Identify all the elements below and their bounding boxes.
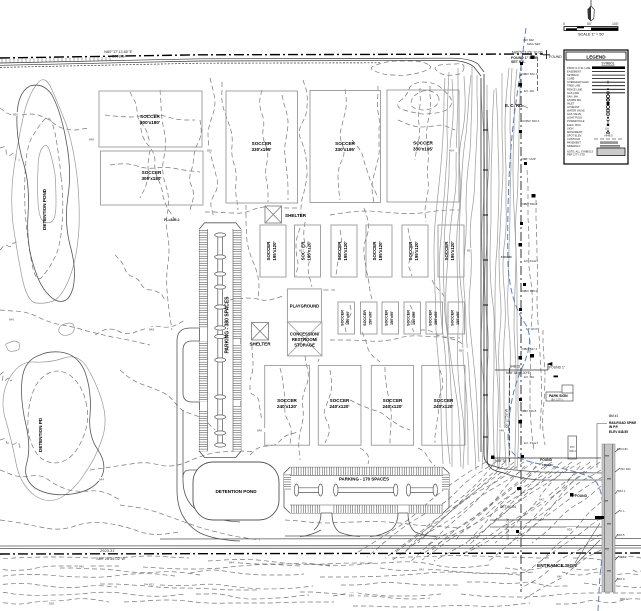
svg-text:RESTROOM/: RESTROOM/: [292, 337, 318, 342]
svg-text:SOCCER: SOCCER: [407, 310, 411, 326]
svg-text:FOUND: FOUND: [540, 458, 553, 462]
svg-text:FOUND: FOUND: [542, 463, 553, 467]
svg-text:SOCCER: SOCCER: [372, 241, 377, 261]
svg-text:LIGHT POLE: LIGHT POLE: [567, 116, 583, 120]
svg-text:195'x120': 195'x120': [378, 241, 383, 260]
svg-text:C.L.: C.L.: [620, 509, 626, 513]
svg-text:240'x120': 240'x120': [329, 404, 349, 409]
svg-text:STORAGE: STORAGE: [294, 343, 315, 348]
svg-text:195'x120': 195'x120': [272, 241, 277, 260]
svg-text:0: 0: [563, 22, 565, 26]
svg-text:850: 850: [459, 349, 464, 353]
svg-text:150'x90': 150'x90': [390, 311, 394, 325]
svg-text:TREE LINE: TREE LINE: [567, 84, 581, 88]
svg-text:854: 854: [449, 149, 454, 153]
svg-text:ELEC. BOX: ELEC. BOX: [567, 123, 581, 127]
svg-text:POWER POLE: POWER POLE: [567, 119, 585, 123]
svg-text:50': 50': [587, 22, 592, 26]
svg-text:150'x90': 150'x90': [412, 311, 416, 325]
svg-text:847.2: 847.2: [619, 555, 627, 559]
svg-text:PARKING - 380 SPACES: PARKING - 380 SPACES: [225, 296, 231, 354]
svg-text:SOCCER: SOCCER: [140, 114, 160, 119]
svg-text:SOCCER: SOCCER: [385, 310, 389, 326]
svg-text:838: 838: [567, 528, 572, 532]
svg-text:INV 839.2: INV 839.2: [524, 202, 538, 206]
svg-text:848: 848: [257, 429, 262, 433]
svg-text:SOCCER: SOCCER: [335, 141, 355, 146]
svg-text:SOCCER: SOCCER: [413, 141, 433, 146]
svg-text:EASEMENT: EASEMENT: [567, 70, 582, 74]
svg-text:SIGN: SIGN: [567, 126, 573, 130]
svg-text:CONCESSION/: CONCESSION/: [290, 332, 320, 337]
svg-text:240'x120': 240'x120': [433, 404, 453, 409]
svg-text:PARK SIGN: PARK SIGN: [549, 394, 568, 398]
svg-text:DETENTION POND: DETENTION POND: [42, 188, 47, 230]
svg-text:ELEV 848.55: ELEV 848.55: [609, 430, 628, 434]
svg-text:INV 840.6: INV 840.6: [526, 119, 540, 123]
svg-text:SOCCER: SOCCER: [252, 141, 272, 146]
svg-text:240'x120': 240'x120': [382, 404, 402, 409]
svg-text:SETBACK: SETBACK: [567, 73, 579, 77]
svg-text:846.0: 846.0: [617, 577, 625, 581]
svg-text:E. C. RD.: E. C. RD.: [505, 103, 524, 108]
svg-text:832: 832: [149, 583, 154, 587]
svg-text:195'x120': 195'x120': [343, 241, 348, 260]
svg-text:MONUMENT: MONUMENT: [567, 130, 583, 134]
svg-text:195'x120': 195'x120': [450, 241, 455, 260]
svg-text:FL=845.2: FL=845.2: [164, 218, 179, 222]
svg-text:150'x90': 150'x90': [456, 311, 460, 325]
svg-text:848.02: 848.02: [510, 365, 520, 369]
svg-text:846.2: 846.2: [570, 449, 577, 453]
svg-text:15" RCP: 15" RCP: [526, 327, 538, 331]
svg-text:852: 852: [299, 249, 304, 253]
svg-text:150'x90': 150'x90': [434, 311, 438, 325]
svg-text:SET P.K.: SET P.K.: [511, 60, 526, 64]
svg-text:195'x120': 195'x120': [414, 241, 419, 260]
svg-text:GAS LINE: GAS LINE: [567, 91, 579, 95]
svg-text:STORM MH: STORM MH: [567, 98, 581, 102]
svg-text:SOCCER: SOCCER: [429, 310, 433, 326]
svg-text:INLET: INLET: [567, 102, 575, 106]
svg-text:SOCCER: SOCCER: [444, 241, 449, 261]
svg-text:N89°52'13"E 70.00': N89°52'13"E 70.00': [512, 51, 543, 55]
svg-text:SOCCER: SOCCER: [363, 310, 367, 326]
svg-text:DETENTION PD: DETENTION PD: [38, 417, 43, 452]
svg-text:844: 844: [99, 478, 104, 482]
svg-text:SOCCER: SOCCER: [266, 241, 271, 261]
svg-text:330'x195': 330'x195': [251, 147, 271, 152]
svg-text:EX. INLET: EX. INLET: [524, 259, 538, 263]
svg-text:EX. INLET: EX. INLET: [524, 441, 538, 445]
svg-text:SOCCER: SOCCER: [337, 241, 342, 261]
svg-text:SOCCER: SOCCER: [434, 398, 454, 403]
svg-text:EX. MH: EX. MH: [524, 89, 534, 93]
svg-text:240'x120': 240'x120': [277, 404, 297, 409]
svg-text:2308.34': 2308.34': [112, 54, 127, 59]
svg-text:SET 50.00: SET 50.00: [500, 505, 516, 509]
svg-text:ENTRANCE SIGN: ENTRANCE SIGN: [537, 563, 577, 569]
svg-text:INV 837.4: INV 837.4: [524, 347, 538, 351]
svg-text:CURB: CURB: [567, 77, 575, 81]
svg-text:(BY CITY): (BY CITY): [551, 398, 563, 402]
svg-text:842: 842: [539, 498, 544, 502]
svg-text:FENCE LINE: FENCE LINE: [567, 87, 583, 91]
svg-text:OVERHEAD ELEC.: OVERHEAD ELEC.: [567, 80, 590, 84]
svg-text:850: 850: [13, 113, 18, 117]
svg-text:DETENTION POND: DETENTION POND: [215, 489, 257, 494]
svg-text:WATER VALVE: WATER VALVE: [567, 109, 585, 113]
svg-text:848: 848: [499, 429, 504, 433]
svg-text:SIDEWALK: SIDEWALK: [567, 144, 581, 148]
svg-text:INV 838.0: INV 838.0: [524, 289, 538, 293]
svg-text:CONTOUR: CONTOUR: [567, 137, 580, 141]
svg-text:LEGEND: LEGEND: [586, 54, 606, 59]
svg-text:852: 852: [467, 249, 472, 253]
svg-text:SOCCER: SOCCER: [330, 398, 350, 403]
svg-text:SOCCER: SOCCER: [142, 170, 162, 175]
svg-text:830: 830: [349, 594, 354, 598]
svg-text:XX: XX: [605, 126, 609, 130]
svg-text:330'x195': 330'x195': [335, 147, 355, 152]
svg-text:300'x180': 300'x180': [141, 176, 161, 181]
svg-text:SYMBOL: SYMBOL: [601, 62, 615, 66]
svg-text:SCALE 1" = 50': SCALE 1" = 50': [578, 33, 605, 37]
svg-text:FOUND: FOUND: [549, 55, 562, 59]
svg-text:EX. MH: EX. MH: [524, 375, 534, 379]
svg-text:P.P.: P.P.: [570, 445, 575, 449]
svg-text:828: 828: [49, 602, 54, 606]
svg-text:INV 841: INV 841: [620, 467, 631, 471]
svg-text:SHELTER: SHELTER: [285, 213, 307, 218]
svg-text:SOCCER: SOCCER: [451, 310, 455, 326]
svg-text:842.1: 842.1: [618, 489, 626, 493]
svg-text:FOUND: FOUND: [575, 494, 588, 498]
svg-text:IN P.P.: IN P.P.: [609, 425, 619, 429]
svg-text:846: 846: [79, 565, 84, 569]
svg-text:844: 844: [229, 561, 234, 565]
svg-text:FOUND 1": FOUND 1": [549, 366, 566, 370]
svg-text:SPOT ELEV.: SPOT ELEV.: [567, 133, 582, 137]
svg-text:2923.31': 2923.31': [100, 548, 115, 553]
svg-text:SOCCER: SOCCER: [408, 241, 413, 261]
svg-text:848: 848: [89, 138, 94, 142]
svg-text:842: 842: [419, 568, 424, 572]
svg-text:846.5: 846.5: [617, 533, 625, 537]
svg-text:330'x195': 330'x195': [413, 147, 433, 152]
svg-text:850: 850: [207, 149, 212, 153]
svg-text:HYDRANT: HYDRANT: [567, 105, 580, 109]
svg-text:300'x180': 300'x180': [140, 120, 160, 125]
svg-text:PLAYGROUND: PLAYGROUND: [290, 304, 319, 309]
svg-text:PAVEMENT: PAVEMENT: [567, 141, 581, 145]
svg-text:PARKING - 170 SPACES: PARKING - 170 SPACES: [339, 477, 389, 482]
svg-text:S00°02' 93.09': S00°02' 93.09': [506, 518, 510, 540]
svg-text:845.1: 845.1: [620, 597, 628, 601]
svg-text:SHELTER: SHELTER: [249, 342, 271, 347]
svg-text:SOCCER: SOCCER: [277, 398, 297, 403]
svg-text:SAN. MH: SAN. MH: [567, 94, 578, 98]
svg-text:846: 846: [9, 318, 14, 322]
svg-text:150'x90': 150'x90': [368, 311, 372, 325]
svg-text:848: 848: [149, 328, 154, 332]
svg-text:MAG SET: MAG SET: [527, 42, 541, 46]
svg-text:BM #1: BM #1: [609, 414, 618, 418]
svg-text:PROP. R.O.W. LINE: PROP. R.O.W. LINE: [567, 66, 591, 70]
svg-text:INV 842.1: INV 842.1: [524, 72, 538, 76]
svg-text:840: 840: [557, 575, 562, 579]
svg-text:FOUND: FOUND: [501, 255, 512, 259]
svg-text:+848.5: +848.5: [604, 133, 613, 137]
svg-text:PER CITY STD.: PER CITY STD.: [567, 153, 586, 157]
svg-text:100': 100': [612, 22, 619, 26]
svg-text:150'x90': 150'x90': [346, 311, 350, 325]
svg-text:N89°34': N89°34': [495, 459, 507, 463]
svg-text:S89°26'39.02"W: S89°26'39.02"W: [96, 556, 125, 561]
svg-text:SOCCER: SOCCER: [383, 398, 403, 403]
svg-text:GAS VALVE: GAS VALVE: [567, 112, 581, 116]
svg-text:SOCCER: SOCCER: [341, 310, 345, 326]
